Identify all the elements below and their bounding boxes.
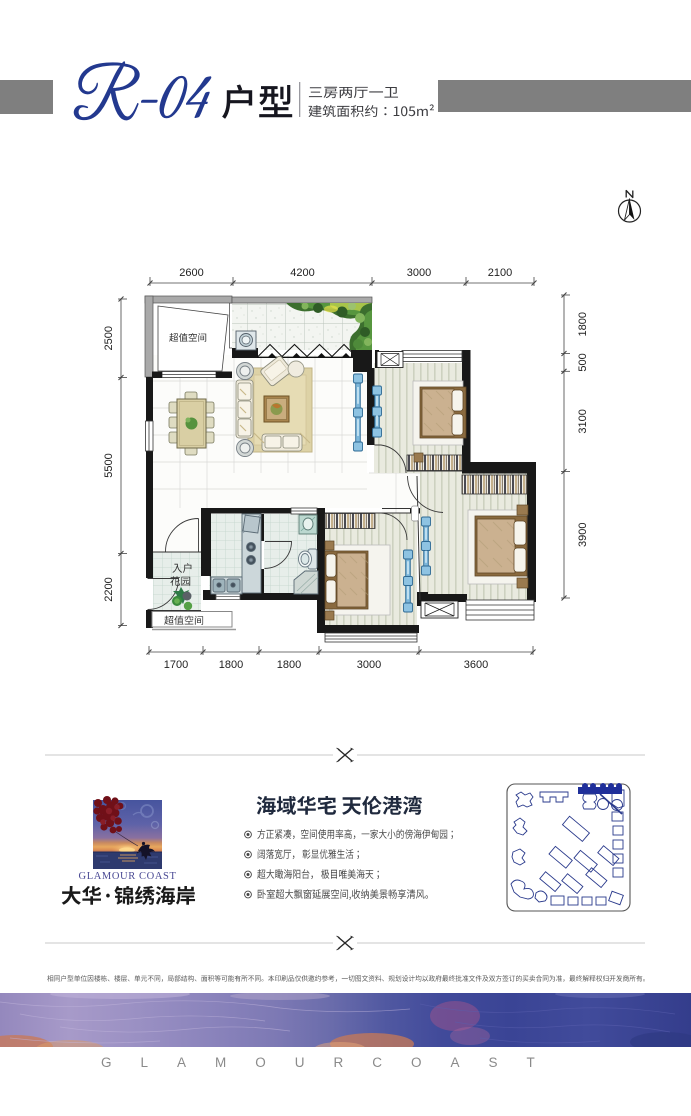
svg-text:1800: 1800	[277, 659, 301, 671]
svg-text:3000: 3000	[407, 267, 431, 279]
svg-text:1800: 1800	[219, 659, 243, 671]
svg-text:5500: 5500	[103, 453, 115, 477]
svg-text:500: 500	[577, 353, 589, 371]
svg-text:GLAMOURCOAST: GLAMOURCOAST	[101, 1055, 564, 1070]
svg-text:3100: 3100	[577, 409, 589, 433]
svg-text:1700: 1700	[164, 659, 188, 671]
svg-text:3900: 3900	[577, 523, 589, 547]
svg-text:2100: 2100	[488, 267, 512, 279]
svg-text:GLAMOUR COAST: GLAMOUR COAST	[79, 871, 177, 882]
svg-text:2500: 2500	[103, 326, 115, 350]
svg-text:3000: 3000	[357, 659, 381, 671]
svg-text:2600: 2600	[179, 267, 203, 279]
svg-text:3600: 3600	[464, 659, 488, 671]
svg-text:1800: 1800	[577, 312, 589, 336]
svg-text:4200: 4200	[290, 267, 314, 279]
svg-text:2200: 2200	[103, 577, 115, 601]
